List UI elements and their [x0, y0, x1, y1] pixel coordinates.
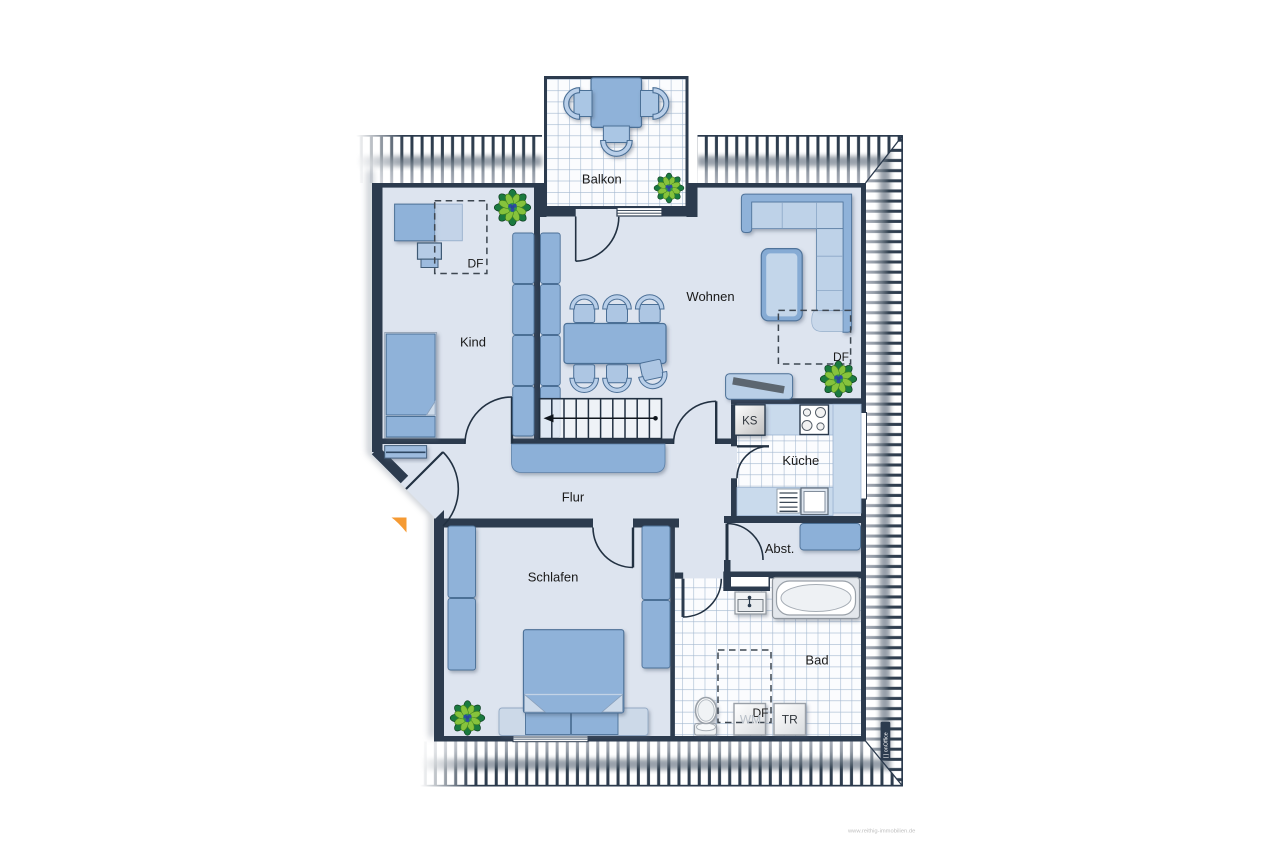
svg-text:KS: KS — [742, 416, 758, 428]
svg-text:TR: TR — [782, 713, 798, 727]
svg-text:Wohnen: Wohnen — [686, 289, 734, 304]
svg-text:www.reithig-immobilien.de: www.reithig-immobilien.de — [847, 829, 915, 835]
svg-text:Balkon: Balkon — [582, 172, 622, 187]
svg-text:[ ] onOffice: [ ] onOffice — [883, 732, 889, 758]
svg-text:Kind: Kind — [460, 335, 486, 350]
svg-text:Küche: Küche — [782, 453, 819, 468]
svg-text:DF: DF — [468, 257, 484, 271]
svg-text:WM: WM — [740, 713, 761, 727]
svg-text:Bad: Bad — [805, 653, 828, 668]
svg-text:Schlafen: Schlafen — [528, 570, 579, 585]
svg-text:Abst.: Abst. — [765, 541, 795, 556]
svg-text:Flur: Flur — [562, 490, 585, 505]
svg-text:DF: DF — [833, 350, 849, 364]
